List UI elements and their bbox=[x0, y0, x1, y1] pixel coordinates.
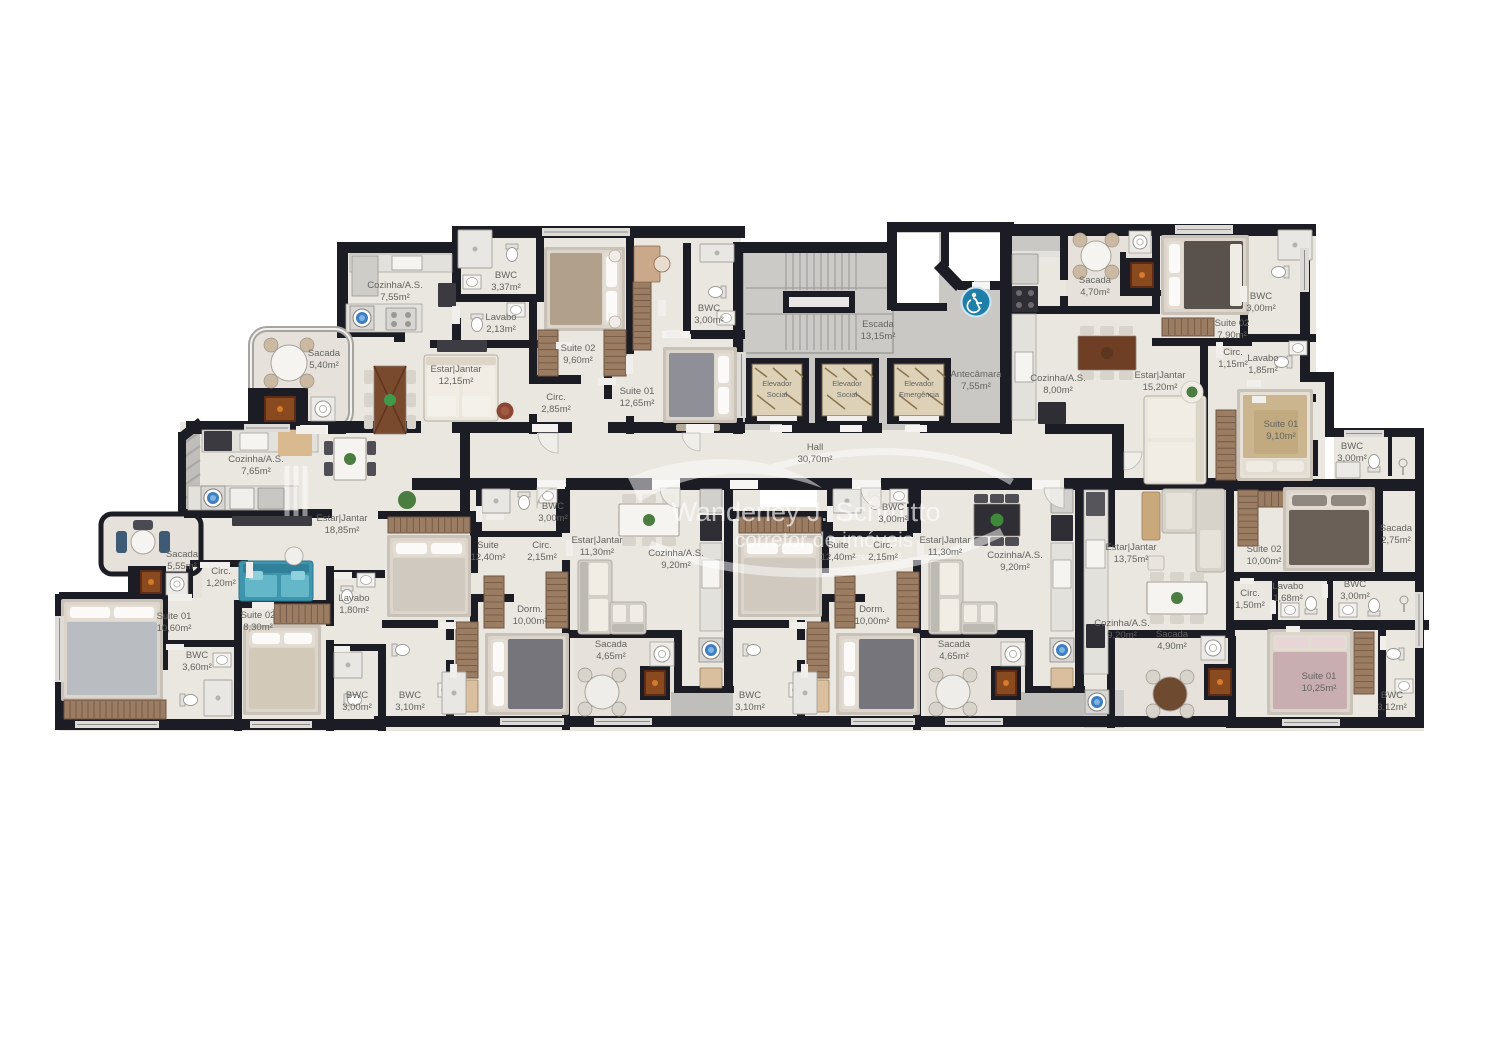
svg-text:Hall: Hall bbox=[807, 442, 823, 453]
svg-text:30,70m²: 30,70m² bbox=[798, 454, 833, 465]
svg-text:Sacada: Sacada bbox=[166, 549, 199, 560]
svg-text:Circ.: Circ. bbox=[1240, 588, 1260, 599]
svg-text:Lavabo: Lavabo bbox=[338, 593, 369, 604]
svg-text:BWC: BWC bbox=[399, 690, 421, 701]
svg-text:Elevador: Elevador bbox=[762, 379, 792, 388]
svg-text:3,00m²: 3,00m² bbox=[1340, 591, 1370, 602]
svg-text:4,90m²: 4,90m² bbox=[1157, 641, 1187, 652]
svg-text:Circ.: Circ. bbox=[1223, 347, 1243, 358]
svg-text:Suite: Suite bbox=[477, 540, 499, 551]
svg-text:Emergência: Emergência bbox=[899, 390, 940, 399]
svg-text:Cozinha/A.S.: Cozinha/A.S. bbox=[228, 454, 283, 465]
svg-text:Sacada: Sacada bbox=[595, 639, 628, 650]
svg-text:BWC: BWC bbox=[1344, 579, 1366, 590]
svg-text:7,90m²: 7,90m² bbox=[1217, 330, 1247, 341]
svg-text:7,55m²: 7,55m² bbox=[380, 292, 410, 303]
svg-text:Lavabo: Lavabo bbox=[1247, 353, 1278, 364]
svg-text:Circ.: Circ. bbox=[546, 392, 566, 403]
svg-text:12,40m²: 12,40m² bbox=[821, 552, 856, 563]
svg-text:10,25m²: 10,25m² bbox=[1302, 683, 1337, 694]
svg-text:3,00m²: 3,00m² bbox=[1337, 453, 1367, 464]
svg-text:Estar|Jantar: Estar|Jantar bbox=[430, 364, 481, 375]
svg-text:Estar|Jantar: Estar|Jantar bbox=[1134, 370, 1185, 381]
svg-text:Sacada: Sacada bbox=[1156, 629, 1189, 640]
svg-text:3,00m²: 3,00m² bbox=[538, 513, 568, 524]
svg-text:2,15m²: 2,15m² bbox=[527, 552, 557, 563]
svg-text:Social: Social bbox=[767, 390, 788, 399]
svg-text:Lavabo: Lavabo bbox=[485, 312, 516, 323]
svg-text:15,20m²: 15,20m² bbox=[1143, 382, 1178, 393]
svg-text:Circ.: Circ. bbox=[532, 540, 552, 551]
svg-text:Sacada: Sacada bbox=[938, 639, 971, 650]
svg-text:9,20m²: 9,20m² bbox=[1107, 630, 1137, 641]
svg-text:Dorm.: Dorm. bbox=[859, 604, 885, 615]
svg-text:11,30m²: 11,30m² bbox=[580, 547, 614, 558]
svg-text:2,75m²: 2,75m² bbox=[1381, 535, 1411, 546]
svg-text:Estar|Jantar: Estar|Jantar bbox=[316, 513, 367, 524]
svg-text:Suite 01: Suite 01 bbox=[1302, 671, 1337, 682]
svg-text:3,00m²: 3,00m² bbox=[342, 702, 372, 713]
svg-text:12,40m²: 12,40m² bbox=[471, 552, 506, 563]
svg-text:3,00m²: 3,00m² bbox=[1246, 303, 1276, 314]
svg-text:BWC: BWC bbox=[186, 650, 208, 661]
svg-text:Cozinha/A.S.: Cozinha/A.S. bbox=[648, 548, 703, 559]
svg-text:1,50m²: 1,50m² bbox=[1235, 600, 1265, 611]
svg-text:1,80m²: 1,80m² bbox=[339, 605, 369, 616]
svg-text:Elevador: Elevador bbox=[904, 379, 934, 388]
svg-text:Suite 01: Suite 01 bbox=[620, 386, 655, 397]
svg-text:BWC: BWC bbox=[542, 501, 564, 512]
svg-text:Social: Social bbox=[837, 390, 858, 399]
svg-text:5,55m²: 5,55m² bbox=[167, 561, 197, 572]
svg-text:Suite 01: Suite 01 bbox=[157, 611, 192, 622]
svg-text:Suite: Suite bbox=[827, 540, 849, 551]
svg-text:BWC: BWC bbox=[1381, 690, 1403, 701]
svg-text:BWC: BWC bbox=[1250, 291, 1272, 302]
svg-text:Suite 02: Suite 02 bbox=[1247, 544, 1282, 555]
svg-text:11,30m²: 11,30m² bbox=[928, 547, 962, 558]
svg-text:8,30m²: 8,30m² bbox=[243, 622, 273, 633]
svg-text:4,65m²: 4,65m² bbox=[596, 651, 626, 662]
svg-text:Circ.: Circ. bbox=[211, 566, 231, 577]
svg-text:Suite 02: Suite 02 bbox=[241, 610, 276, 621]
svg-text:Estar|Jantar: Estar|Jantar bbox=[1105, 542, 1156, 553]
svg-text:BWC: BWC bbox=[495, 270, 517, 281]
svg-text:Circ.: Circ. bbox=[873, 540, 893, 551]
svg-text:5,40m²: 5,40m² bbox=[309, 360, 339, 371]
svg-text:3,10m²: 3,10m² bbox=[395, 702, 425, 713]
svg-text:Sacada: Sacada bbox=[1380, 523, 1413, 534]
svg-text:BWC: BWC bbox=[739, 690, 761, 701]
svg-text:BWC: BWC bbox=[1341, 441, 1363, 452]
svg-text:2,15m²: 2,15m² bbox=[868, 552, 898, 563]
svg-text:1,15m²: 1,15m² bbox=[1218, 359, 1248, 370]
svg-text:Suite 02: Suite 02 bbox=[1215, 318, 1250, 329]
svg-text:10,00m²: 10,00m² bbox=[513, 616, 548, 627]
svg-text:3,12m²: 3,12m² bbox=[1377, 702, 1407, 713]
svg-text:3,10m²: 3,10m² bbox=[735, 702, 765, 713]
svg-text:Estar|Jantar: Estar|Jantar bbox=[571, 535, 622, 546]
svg-text:Lavabo: Lavabo bbox=[1272, 581, 1303, 592]
svg-text:4,65m²: 4,65m² bbox=[939, 651, 969, 662]
svg-text:Dorm.: Dorm. bbox=[517, 604, 543, 615]
svg-text:Cozinha/A.S.: Cozinha/A.S. bbox=[367, 280, 422, 291]
svg-text:2,13m²: 2,13m² bbox=[486, 324, 516, 335]
svg-text:Suite 01: Suite 01 bbox=[1264, 419, 1299, 430]
svg-text:Sacada: Sacada bbox=[308, 348, 341, 359]
svg-text:Cozinha/A.S.: Cozinha/A.S. bbox=[1094, 618, 1149, 629]
svg-text:BWC: BWC bbox=[346, 690, 368, 701]
svg-text:Estar|Jantar: Estar|Jantar bbox=[919, 535, 970, 546]
svg-text:7,65m²: 7,65m² bbox=[241, 466, 271, 477]
svg-text:13,75m²: 13,75m² bbox=[1114, 554, 1149, 565]
svg-text:3,00m²: 3,00m² bbox=[694, 315, 724, 326]
svg-text:13,15m²: 13,15m² bbox=[861, 331, 896, 342]
svg-text:3,37m²: 3,37m² bbox=[491, 282, 521, 293]
svg-text:Escada: Escada bbox=[862, 319, 894, 330]
svg-text:1,20m²: 1,20m² bbox=[206, 578, 236, 589]
svg-text:18,85m²: 18,85m² bbox=[325, 525, 360, 536]
svg-text:2,85m²: 2,85m² bbox=[541, 404, 571, 415]
svg-text:7,55m²: 7,55m² bbox=[961, 381, 991, 392]
svg-text:Antecâmara: Antecâmara bbox=[950, 369, 1002, 380]
svg-text:3,60m²: 3,60m² bbox=[182, 662, 212, 673]
svg-text:1,68m²: 1,68m² bbox=[1273, 593, 1303, 604]
svg-text:10,00m²: 10,00m² bbox=[1247, 556, 1282, 567]
svg-text:1,85m²: 1,85m² bbox=[1248, 365, 1278, 376]
svg-text:Sacada: Sacada bbox=[1079, 275, 1112, 286]
svg-text:10,00m²: 10,00m² bbox=[855, 616, 890, 627]
svg-text:Suite 02: Suite 02 bbox=[561, 343, 596, 354]
svg-text:9,60m²: 9,60m² bbox=[563, 355, 593, 366]
svg-text:9,20m²: 9,20m² bbox=[661, 560, 691, 571]
svg-text:3,00m²: 3,00m² bbox=[878, 514, 908, 525]
svg-text:8,00m²: 8,00m² bbox=[1043, 385, 1073, 396]
svg-text:9,10m²: 9,10m² bbox=[1266, 431, 1296, 442]
svg-text:12,65m²: 12,65m² bbox=[620, 398, 655, 409]
svg-text:9,20m²: 9,20m² bbox=[1000, 562, 1030, 573]
svg-text:10,60m²: 10,60m² bbox=[157, 623, 192, 634]
svg-text:BWC: BWC bbox=[882, 502, 904, 513]
svg-text:Elevador: Elevador bbox=[832, 379, 862, 388]
svg-text:Cozinha/A.S.: Cozinha/A.S. bbox=[987, 550, 1042, 561]
svg-text:BWC: BWC bbox=[698, 303, 720, 314]
svg-text:4,70m²: 4,70m² bbox=[1080, 287, 1110, 298]
svg-text:12,15m²: 12,15m² bbox=[439, 376, 474, 387]
svg-text:Cozinha/A.S.: Cozinha/A.S. bbox=[1030, 373, 1085, 384]
